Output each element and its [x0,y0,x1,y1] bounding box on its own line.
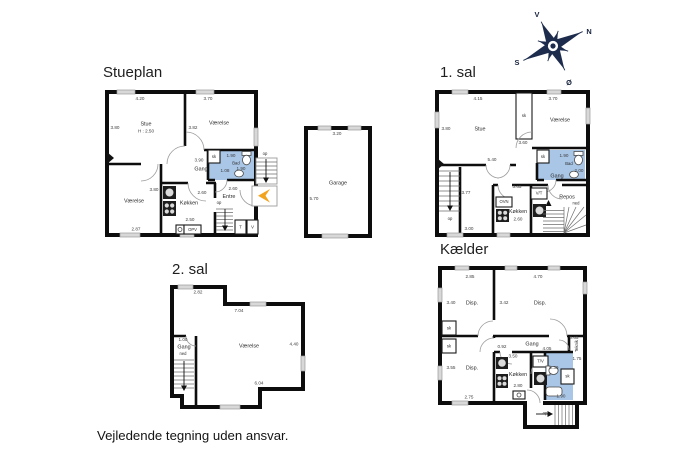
stueplan-door-wedge [107,152,114,164]
dim-label: 0.65 [570,335,579,340]
op-label: op [448,216,453,221]
room-label-vaerelse: Værelse [239,343,259,349]
dim-label: 3.50 [509,354,518,359]
room-label-disp1: Disp. [466,300,478,306]
op-label: op [217,200,222,205]
stove-icon [496,374,508,388]
dim-label: 2.85 [466,274,475,279]
dim-label: 3.55 [447,365,456,370]
room-label-garage: Garage [329,180,347,186]
dim-label: 3.80 [442,126,451,131]
dishwasher-box [513,391,525,399]
dim-label: 2.50 [186,217,195,222]
dim-label: 1.00 [179,337,188,342]
dim-label: 3.70 [204,96,213,101]
dim-label: 1.90 [557,394,566,399]
dim-label: 3.20 [333,131,342,136]
room-label-vaerelse: Værelse [209,120,229,126]
dim-label: 7.04 [235,308,244,313]
dim-label: 2.82 [194,290,203,295]
sal1-vt-label: V/T [536,191,543,196]
dim-label: 3.90 [195,158,204,163]
dim-label: 4.05 [543,346,552,351]
dim-label: 2.75 [465,395,474,400]
dim-label: 3.82 [189,125,198,130]
dim-label: 3.65 [513,184,522,189]
dim-label: 3.60 [519,140,528,145]
dim-label: 1.08 [221,168,230,173]
dim-label: 1.90 [227,153,236,158]
sal1-ovn-label: OVN [499,199,508,204]
room-label-koekken: Køkken [509,372,527,378]
toilet-icon [574,152,583,165]
dim-label: 2.39 [550,365,559,370]
room-label-koekken: Køkken [509,209,527,215]
sal1-stairs [439,171,460,211]
toilet-icon [242,152,251,165]
dim-label: 3.80 [150,187,159,192]
ned-label: ned [180,351,188,356]
dim-label: 2.60 [514,217,523,222]
room-label-repos: Repos [559,194,575,200]
compass-label-n: N [586,27,591,36]
compass-label-v: V [535,10,540,19]
dim-label: 3.40 [447,300,456,305]
room-label-gang: Gang [550,173,563,179]
dim-label: 2.60 [198,190,207,195]
room-label-gang: Gang [177,344,190,350]
room-label-bad: Bad [232,161,240,166]
dim-label: 3.77 [462,190,471,195]
stueplan-v-label: V [251,225,254,230]
stueplan-interior-stairs [216,209,233,231]
dim-label: 4.20 [136,96,145,101]
sal1-repos-stairs [543,200,586,233]
floor-plan-sheet: Stueplan sk [0,0,687,457]
room-label-bad: Bad [565,161,573,166]
room-label-stue: Stue [474,126,485,132]
kaelder-tv-label: T/V [537,359,544,364]
dim-label: 4.70 [534,274,543,279]
dim-label: 4.15 [474,96,483,101]
room-label-gang: Gang [194,166,207,172]
room-label-vaerelse2: Værelse [124,198,144,204]
dim-label: 5.40 [488,157,497,162]
dim-label: 3.42 [500,300,509,305]
dim-label: 3.70 [549,96,558,101]
sal2-title: 2. sal [172,261,208,278]
kitchen-sink-icon [496,357,508,369]
floor-plan-drawing: Stueplan sk [0,0,687,457]
op-label: op [263,151,268,156]
dim-label: 2.00 [575,168,584,173]
dim-label: 2.60 [229,186,238,191]
room-label-stue: Stue [140,121,151,127]
kaelder-exterior-stairs [536,405,573,425]
floor-plan-stueplan: Stueplan sk [103,64,277,237]
ned-label: ned [573,201,581,206]
stueplan-title: Stueplan [103,64,162,81]
dim-label: 5.70 [310,196,319,201]
op-label: op [543,411,548,416]
stove-icon [163,201,176,216]
kaelder-title: Kælder [440,241,488,258]
room-label-teknik: Teknik [574,339,579,352]
sal1-door-wedge [437,158,444,170]
room-label-disp3: Disp. [466,365,478,371]
floor-plan-1-sal: 1. sal sk sk [435,64,590,237]
room-label-gang: Gang [525,341,538,347]
sal2-stairs [174,360,194,391]
room-height-label: H : 2.50 [138,129,155,134]
dim-label: 1.75 [573,356,582,361]
room-label-entre: Entre [223,194,236,200]
stueplan-t-label: T [239,225,242,230]
stove-icon [496,209,509,222]
dim-label: 3.00 [465,226,474,231]
dim-label: 6.04 [255,381,264,386]
kitchen-sink-icon [163,186,176,199]
floor-plan-garage: 3.20 Garage 5.70 [306,126,370,238]
dim-label: 2.80 [514,383,523,388]
stueplan-opv-label: OPV [188,227,197,232]
floor-plan-2-sal: 2. sal 2.82 7.04 1.00 Gang ned Værelse 4… [172,261,305,409]
dim-label: 4.40 [290,342,299,347]
dim-label: 3.80 [111,125,120,130]
floor-plan-kaelder: Kælder sk sk [438,241,587,427]
washer-icon [534,372,547,385]
compass-rose: V N S Ø [512,7,595,87]
disclaimer-text: Vejledende tegning uden ansvar. [97,428,288,443]
sal2-outer-walls [172,287,303,407]
compass-label-oe: Ø [566,78,572,87]
dim-label: 1.90 [560,153,569,158]
room-label-koekken: Køkken [180,200,198,206]
dim-label: 0.92 [498,344,507,349]
compass-label-s: S [515,58,520,67]
dim-label: 2.87 [132,227,141,232]
room-label-vaerelse: Værelse [550,117,570,123]
room-label-disp2: Disp. [534,300,546,306]
dim-label: 1.90 [237,166,246,171]
sal1-title: 1. sal [440,64,476,81]
